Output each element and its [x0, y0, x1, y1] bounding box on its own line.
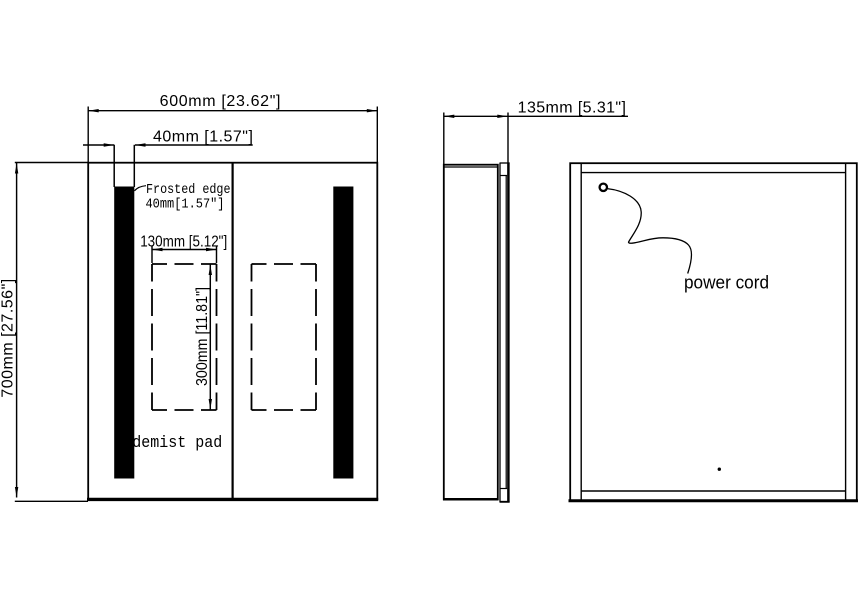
svg-text:130mm [5.12"]: 130mm [5.12"]	[140, 234, 227, 251]
svg-text:power cord: power cord	[684, 271, 769, 292]
svg-text:demist pad: demist pad	[132, 434, 222, 453]
svg-text:40mm[1.57″]: 40mm[1.57″]	[146, 198, 225, 213]
svg-text:135mm [5.31"]: 135mm [5.31"]	[518, 99, 627, 116]
svg-text:600mm [23.62"]: 600mm [23.62"]	[160, 93, 282, 110]
svg-text:700mm [27.56"]: 700mm [27.56"]	[0, 278, 17, 397]
svg-text:300mm [11.81"]: 300mm [11.81"]	[194, 287, 211, 386]
svg-text:40mm [1.57"]: 40mm [1.57"]	[153, 128, 253, 145]
svg-text:Frosted edge: Frosted edge	[146, 183, 231, 198]
